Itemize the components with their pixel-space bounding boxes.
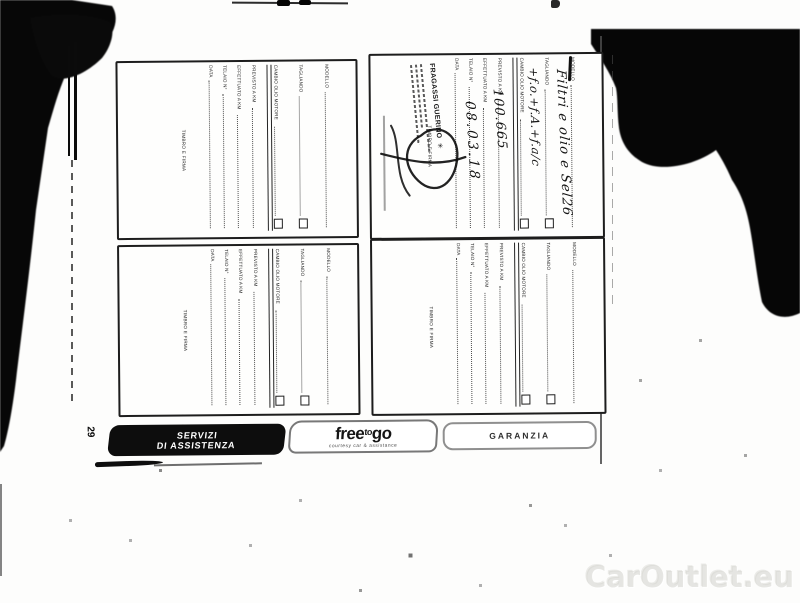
scan-noise-speckles bbox=[0, 0, 1, 1]
tab-servizi-line2: DI ASSISTENZA bbox=[156, 440, 236, 451]
data-dotted-line bbox=[455, 74, 458, 229]
previsto-km-dotted-line bbox=[499, 286, 502, 404]
previsto-km-dotted-line bbox=[498, 101, 501, 228]
field-data: DATA bbox=[453, 58, 469, 234]
telaio-dotted-line bbox=[223, 94, 226, 228]
data-dotted-line bbox=[456, 259, 459, 405]
data-label: DATA bbox=[207, 65, 213, 77]
previsto-km-label: PREVISTO A KM bbox=[250, 65, 256, 103]
tagliando-label: TAGLIANDO bbox=[299, 248, 305, 276]
tagliando-dotted-line bbox=[545, 90, 548, 216]
data-dotted-line bbox=[210, 265, 213, 406]
field-previsto-km: PREVISTO A KM bbox=[250, 65, 266, 234]
field-cambio-olio: CAMBIO OLIO MOTORE bbox=[272, 65, 298, 234]
tagliando-dotted-line bbox=[300, 281, 303, 393]
cambio-olio-label: CAMBIO OLIO MOTORE bbox=[272, 65, 278, 120]
tab-servizi-line1: SERVIZI bbox=[177, 430, 219, 440]
field-effettuato-km: EFFETTUATO A KM bbox=[481, 58, 498, 234]
modello-label: MODELLO bbox=[571, 242, 577, 266]
cambio-olio-checkbox bbox=[520, 219, 529, 229]
page-number: 29 bbox=[85, 426, 96, 437]
cambio-olio-label: CAMBIO OLIO MOTORE bbox=[274, 249, 280, 304]
telaio-label: TELAIO N° bbox=[467, 58, 473, 83]
field-tagliando: TAGLIANDO bbox=[543, 57, 571, 233]
modello-dotted-line bbox=[572, 270, 575, 403]
tagliando-label: TAGLIANDO bbox=[297, 64, 303, 92]
coupon-bottom-left: MODELLO TAGLIANDO CAMBIO OLIO MOTORE PRE… bbox=[117, 243, 360, 417]
tab-servizi-di-assistenza: SERVIZI DI ASSISTENZA bbox=[107, 424, 287, 457]
tab-garanzia-label: GARANZIA bbox=[489, 430, 550, 441]
timbro-firma-label: TIMBRO E FIRMA bbox=[182, 310, 188, 352]
cambio-olio-dotted-line bbox=[276, 311, 279, 393]
modello-label: MODELLO bbox=[325, 248, 331, 272]
field-tagliando: TAGLIANDO bbox=[545, 242, 572, 409]
field-tagliando: TAGLIANDO bbox=[297, 64, 324, 233]
freetogo-subtitle: courtesy car & assistance bbox=[328, 443, 397, 449]
service-coupon-form: MODELLO TAGLIANDO CAMBIO OLIO MOTORE PRE… bbox=[370, 54, 600, 235]
tagliando-checkbox bbox=[545, 218, 554, 228]
modello-label: MODELLO bbox=[569, 57, 575, 81]
effettuato-km-dotted-line bbox=[239, 299, 242, 405]
cambio-olio-checkbox bbox=[275, 396, 284, 406]
timbro-firma-label: TIMBRO E FIRMA bbox=[426, 126, 432, 168]
tab-garanzia: GARANZIA bbox=[443, 421, 597, 450]
effettuato-km-label: EFFETTUATO A KM bbox=[237, 249, 243, 294]
field-cambio-olio: CAMBIO OLIO MOTORE bbox=[518, 57, 545, 233]
field-modello: MODELLO bbox=[569, 57, 597, 233]
service-coupon-form: MODELLO TAGLIANDO CAMBIO OLIO MOTORE PRE… bbox=[119, 245, 355, 412]
effettuato-km-label: EFFETTUATO A KM bbox=[235, 65, 241, 110]
field-telaio: TELAIO N° bbox=[223, 249, 238, 411]
telaio-label: TELAIO N° bbox=[221, 65, 227, 90]
effettuato-km-dotted-line bbox=[484, 293, 487, 404]
stamp-area: TIMBRO E FIRMA bbox=[117, 65, 208, 235]
cambio-olio-checkbox bbox=[274, 219, 283, 229]
tab-freetogo: freetogo courtesy car & assistance bbox=[288, 419, 439, 453]
field-telaio: TELAIO N° bbox=[467, 58, 483, 234]
modello-dotted-line bbox=[325, 92, 328, 227]
tagliando-label: TAGLIANDO bbox=[543, 57, 549, 85]
cambio-olio-dotted-line bbox=[520, 119, 523, 215]
previsto-km-dotted-line bbox=[252, 108, 255, 228]
field-data: DATA bbox=[455, 243, 470, 410]
field-effettuato-km: EFFETTUATO A KM bbox=[237, 249, 253, 411]
previsto-km-label: PREVISTO A KM bbox=[252, 249, 258, 287]
tagliando-dotted-line bbox=[546, 275, 549, 392]
pen-dash-tail bbox=[154, 462, 262, 466]
field-previsto-km: PREVISTO A KM bbox=[252, 249, 268, 411]
stamp-area: TIMBRO E FIRMA bbox=[372, 243, 456, 411]
data-dotted-line bbox=[209, 81, 212, 229]
modello-dotted-line bbox=[571, 85, 574, 227]
field-tagliando: TAGLIANDO bbox=[299, 248, 326, 410]
coupon-bottom-right: MODELLO TAGLIANDO CAMBIO OLIO MOTORE PRE… bbox=[370, 237, 607, 416]
telaio-dotted-line bbox=[469, 87, 472, 228]
stamp-area: TIMBRO E FIRMA bbox=[119, 249, 210, 412]
tagliando-label: TAGLIANDO bbox=[545, 242, 551, 270]
tagliando-checkbox bbox=[300, 395, 309, 405]
stamp-area: TIMBRO E FIRMA bbox=[370, 58, 455, 235]
coupon-top-right-filled: MODELLO TAGLIANDO CAMBIO OLIO MOTORE PRE… bbox=[368, 52, 605, 240]
field-cambio-olio: CAMBIO OLIO MOTORE bbox=[520, 242, 546, 409]
modello-dotted-line bbox=[326, 276, 329, 404]
data-label: DATA bbox=[455, 243, 461, 255]
cambio-olio-label: CAMBIO OLIO MOTORE bbox=[518, 58, 524, 113]
tagliando-dotted-line bbox=[299, 97, 302, 216]
field-data: DATA bbox=[207, 65, 222, 234]
field-telaio: TELAIO N° bbox=[221, 65, 236, 234]
timbro-firma-label: TIMBRO E FIRMA bbox=[180, 129, 186, 171]
tagliando-checkbox bbox=[299, 218, 308, 228]
cambio-olio-checkbox bbox=[521, 395, 530, 405]
freetogo-wordmark: freetogo bbox=[335, 424, 393, 443]
previsto-km-label: PREVISTO A KM bbox=[496, 58, 502, 96]
coupon-top-left: MODELLO TAGLIANDO CAMBIO OLIO MOTORE PRE… bbox=[115, 59, 359, 240]
telaio-dotted-line bbox=[224, 278, 227, 405]
effettuato-km-dotted-line bbox=[237, 115, 240, 228]
field-effettuato-km: EFFETTUATO A KM bbox=[483, 243, 499, 410]
field-modello: MODELLO bbox=[571, 242, 598, 409]
cambio-olio-dotted-line bbox=[522, 304, 525, 391]
service-coupon-form: MODELLO TAGLIANDO CAMBIO OLIO MOTORE PRE… bbox=[117, 61, 353, 235]
modello-label: MODELLO bbox=[323, 64, 329, 88]
data-label: DATA bbox=[209, 249, 215, 261]
previsto-km-dotted-line bbox=[253, 292, 256, 405]
effettuato-km-label: EFFETTUATO A KM bbox=[483, 243, 489, 288]
telaio-label: TELAIO N° bbox=[223, 249, 229, 274]
previsto-km-label: PREVISTO A KM bbox=[498, 243, 504, 281]
timbro-firma-label: TIMBRO E FIRMA bbox=[428, 306, 434, 348]
service-coupon-form: MODELLO TAGLIANDO CAMBIO OLIO MOTORE PRE… bbox=[372, 239, 601, 411]
field-modello: MODELLO bbox=[323, 64, 350, 233]
effettuato-km-label: EFFETTUATO A KM bbox=[481, 58, 487, 103]
field-cambio-olio: CAMBIO OLIO MOTORE bbox=[274, 249, 300, 411]
watermark-caroutlet: CarOutlet.eu bbox=[585, 560, 794, 594]
telaio-label: TELAIO N° bbox=[469, 243, 475, 268]
cambio-olio-label: CAMBIO OLIO MOTORE bbox=[520, 243, 526, 298]
telaio-dotted-line bbox=[470, 272, 473, 404]
field-data: DATA bbox=[209, 249, 224, 411]
cambio-olio-dotted-line bbox=[274, 127, 277, 216]
field-effettuato-km: EFFETTUATO A KM bbox=[235, 65, 251, 234]
field-telaio: TELAIO N° bbox=[469, 243, 484, 410]
tagliando-checkbox bbox=[546, 394, 555, 404]
effettuato-km-dotted-line bbox=[483, 108, 486, 228]
field-previsto-km: PREVISTO A KM bbox=[498, 243, 514, 410]
field-previsto-km: PREVISTO A KM bbox=[496, 58, 513, 234]
field-modello: MODELLO bbox=[325, 248, 352, 410]
data-label: DATA bbox=[453, 58, 459, 70]
scanned-booklet-page: MODELLO TAGLIANDO CAMBIO OLIO MOTORE PRE… bbox=[0, 0, 800, 603]
pen-dash-mark bbox=[95, 460, 163, 467]
